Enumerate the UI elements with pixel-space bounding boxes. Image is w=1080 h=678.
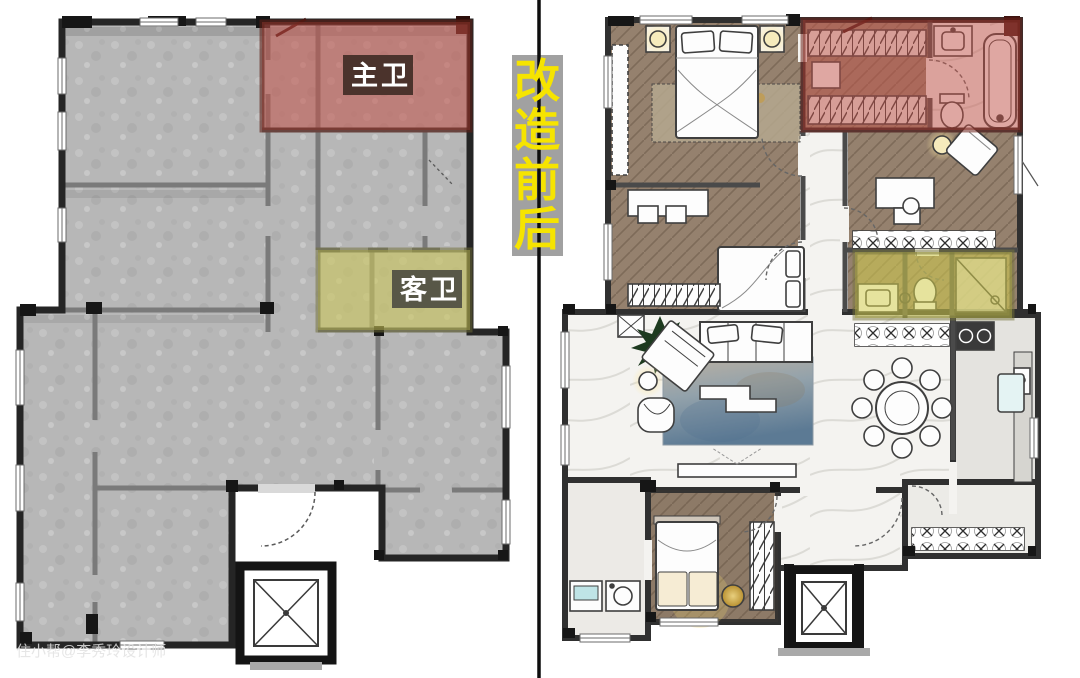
fridge-icon — [998, 374, 1024, 412]
lamp-icon — [650, 31, 666, 47]
divider-char-3: 前 — [514, 154, 560, 206]
dining-set — [852, 358, 952, 458]
elevator-before — [240, 566, 332, 670]
after-entry — [775, 490, 905, 568]
watermark: 住小帮@李秀玲设计师 — [16, 643, 166, 660]
divider-char-2: 造 — [514, 104, 560, 156]
stool — [638, 206, 658, 223]
master-bath-highlight-after — [803, 20, 1020, 130]
bed-master — [676, 26, 758, 138]
shoe-cabinet — [618, 315, 644, 337]
floor-lamp-icon — [639, 372, 657, 390]
lamp-icon — [764, 31, 780, 47]
pouf-icon — [722, 585, 744, 607]
divider-char-1: 改 — [514, 55, 560, 107]
after-plan — [561, 14, 1038, 656]
before-plan: 主卫 客卫 — [16, 16, 510, 670]
wardrobe-column — [612, 45, 628, 175]
elevator-after — [778, 570, 870, 656]
stool — [666, 206, 686, 223]
plans-canvas: 主卫 客卫 — [0, 0, 1080, 678]
laundry-sink-icon — [570, 581, 602, 611]
divider: 改 造 前 后 — [512, 0, 563, 678]
divider-char-4: 后 — [514, 203, 560, 255]
floorplan-comparison: 主卫 客卫 — [0, 0, 1080, 678]
bed-3 — [656, 522, 718, 610]
guest-bath-label-text: 客卫 — [400, 274, 460, 305]
chair — [903, 198, 919, 214]
guest-bath-label: 客卫 — [392, 270, 462, 308]
washer-icon — [606, 581, 640, 611]
master-bath-label-text: 主卫 — [351, 61, 411, 91]
stove-icon — [956, 322, 994, 350]
bed-2 — [718, 247, 804, 311]
after-balcony — [565, 480, 648, 638]
guest-bath-highlight-after — [855, 252, 1012, 318]
master-bath-label: 主卫 — [343, 55, 413, 95]
armchair — [638, 398, 674, 432]
